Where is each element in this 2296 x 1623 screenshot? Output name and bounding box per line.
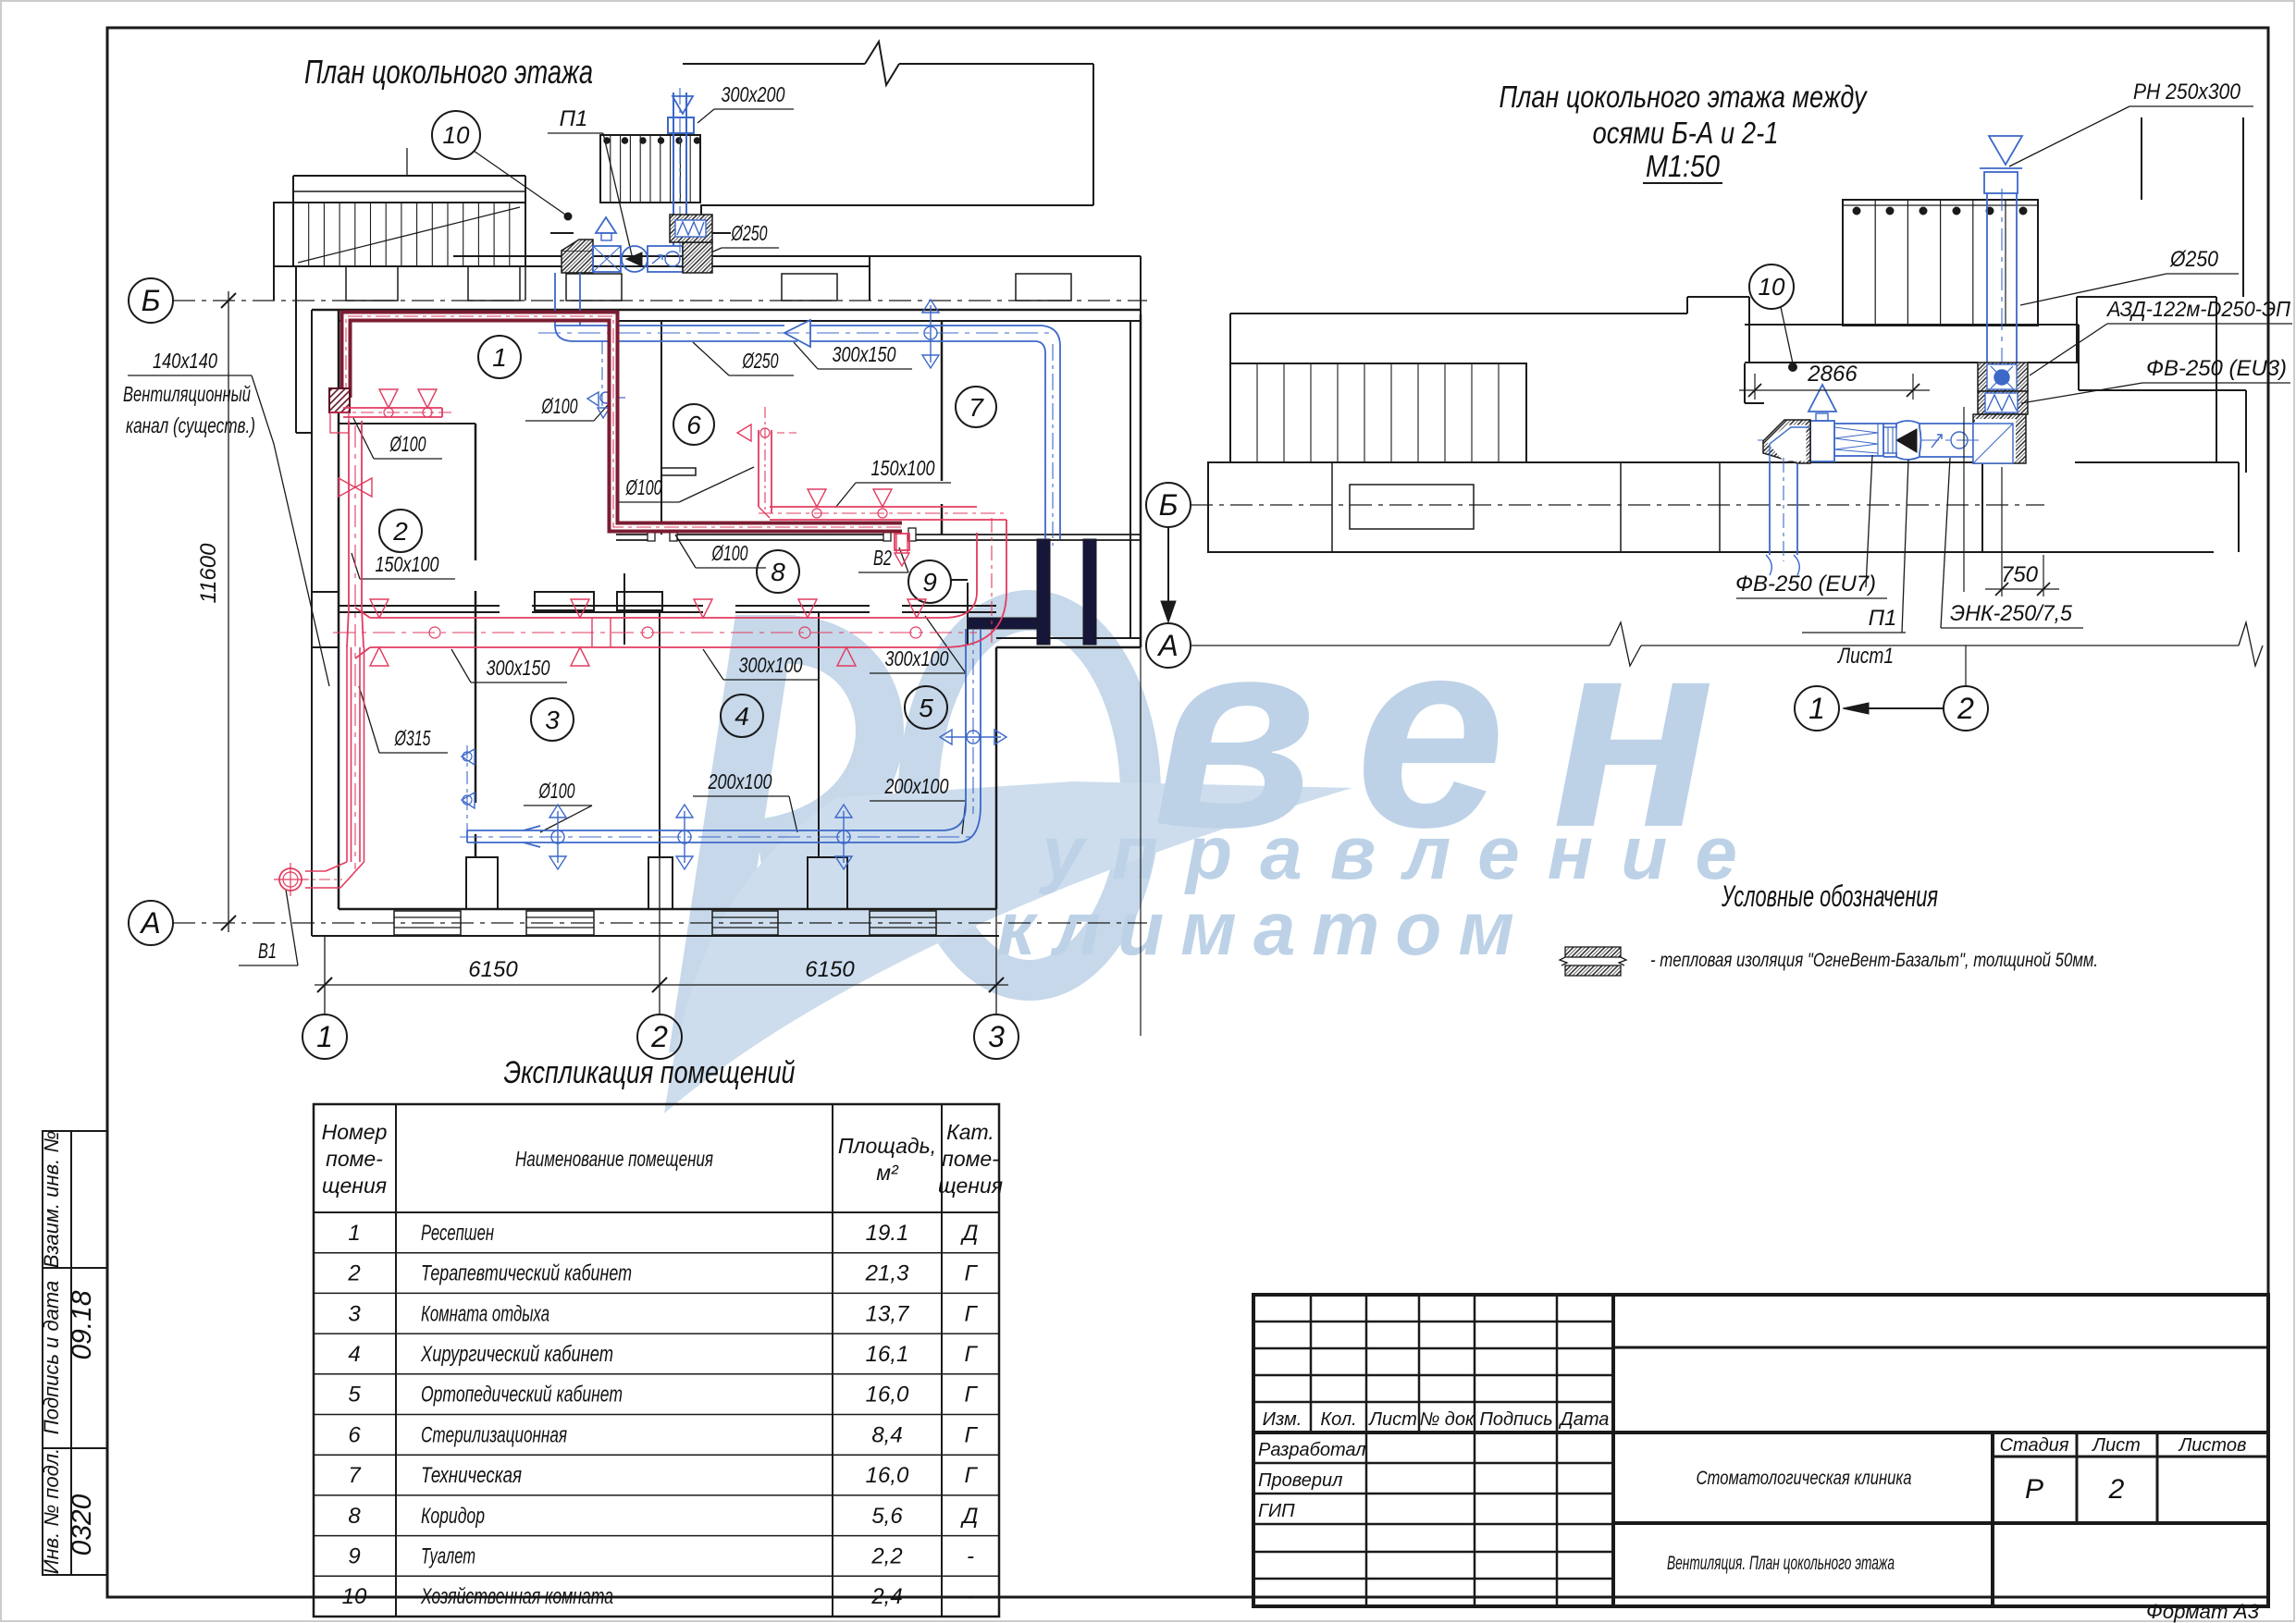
svg-text:Инв. № подл.: Инв. № подл.: [40, 1448, 63, 1575]
svg-text:150x100: 150x100: [871, 456, 935, 480]
svg-text:Г: Г: [964, 1261, 978, 1286]
svg-text:Вентиляция. План цокольного эт: Вентиляция. План цокольного этажа: [1667, 1553, 1895, 1574]
svg-text:300x200: 300x200: [722, 82, 785, 106]
svg-text:-: -: [967, 1584, 974, 1609]
svg-text:8,4: 8,4: [871, 1422, 902, 1447]
svg-text:2,2: 2,2: [870, 1543, 902, 1568]
svg-text:-: -: [967, 1543, 974, 1568]
svg-text:Подпись и дата: Подпись и дата: [40, 1281, 63, 1434]
svg-text:щения: щения: [322, 1174, 387, 1198]
svg-text:Г: Г: [964, 1422, 978, 1447]
svg-text:ФВ-250 (EU7): ФВ-250 (EU7): [1735, 572, 1876, 596]
svg-text:5: 5: [348, 1383, 361, 1408]
svg-text:Б: Б: [1159, 488, 1179, 522]
svg-text:Терапевтический кабинет: Терапевтический кабинет: [421, 1261, 632, 1286]
svg-text:Проверил: Проверил: [1258, 1470, 1342, 1491]
svg-text:Б: Б: [142, 284, 161, 317]
svg-text:ФВ-250 (EU3): ФВ-250 (EU3): [2146, 356, 2287, 381]
svg-text:Ø100: Ø100: [538, 779, 575, 803]
svg-text:2: 2: [1957, 692, 1974, 725]
svg-text:АЗД-122м-D250-ЭП: АЗД-122м-D250-ЭП: [2105, 297, 2290, 321]
svg-text:1: 1: [316, 1020, 333, 1053]
svg-text:16,1: 16,1: [866, 1342, 909, 1367]
svg-text:Кат.: Кат.: [946, 1120, 994, 1144]
svg-text:2: 2: [347, 1261, 360, 1286]
svg-text:Д: Д: [960, 1221, 979, 1246]
svg-text:Вентиляционный: Вентиляционный: [123, 382, 251, 406]
svg-text:2866: 2866: [1807, 362, 1858, 387]
svg-text:6: 6: [348, 1422, 361, 1447]
svg-text:Ø250: Ø250: [742, 349, 779, 373]
svg-text:Комната отдыха: Комната отдыха: [421, 1301, 549, 1326]
svg-text:ЭНК-250/7,5: ЭНК-250/7,5: [1950, 601, 2073, 626]
svg-text:Дата: Дата: [1559, 1409, 1610, 1430]
svg-text:3: 3: [348, 1301, 361, 1326]
svg-text:Хозяйственная комната: Хозяйственная комната: [420, 1584, 613, 1609]
svg-text:0320: 0320: [67, 1494, 97, 1555]
svg-text:Условные обозначения: Условные обозначения: [1721, 879, 1938, 913]
svg-text:Формат А3: Формат А3: [2146, 1600, 2260, 1623]
svg-text:Д: Д: [960, 1504, 979, 1529]
svg-text:М1:50: М1:50: [1646, 149, 1721, 183]
svg-text:Г: Г: [964, 1342, 978, 1367]
svg-text:Подпись: Подпись: [1479, 1409, 1552, 1430]
svg-text:10: 10: [1759, 273, 1785, 301]
svg-text:Ø100: Ø100: [711, 541, 748, 565]
svg-text:Ø100: Ø100: [541, 394, 578, 418]
svg-text:150x100: 150x100: [376, 552, 439, 576]
svg-text:№ док: № док: [1420, 1409, 1475, 1430]
svg-text:5: 5: [919, 694, 933, 722]
svg-text:8: 8: [348, 1504, 361, 1529]
svg-text:11600: 11600: [196, 543, 221, 604]
svg-text:Ø315: Ø315: [394, 726, 431, 750]
svg-text:750: 750: [2001, 562, 2039, 587]
svg-text:поме-: поме-: [942, 1147, 999, 1171]
svg-text:19.1: 19.1: [866, 1221, 909, 1246]
svg-text:Площадь,: Площадь,: [838, 1134, 936, 1158]
svg-text:10: 10: [342, 1584, 367, 1609]
svg-text:2: 2: [2108, 1474, 2125, 1505]
svg-text:Изм.: Изм.: [1263, 1409, 1302, 1430]
svg-text:09.18: 09.18: [67, 1290, 97, 1359]
svg-text:9: 9: [348, 1543, 360, 1568]
svg-text:РН 250x300: РН 250x300: [2133, 80, 2241, 105]
svg-text:2: 2: [392, 517, 408, 546]
svg-text:300x100: 300x100: [885, 646, 949, 670]
svg-text:200x100: 200x100: [708, 769, 772, 793]
svg-text:Техническая: Техническая: [421, 1463, 522, 1488]
svg-text:300x150: 300x150: [833, 342, 896, 366]
svg-text:6150: 6150: [805, 957, 855, 982]
svg-text:Ø100: Ø100: [389, 432, 426, 456]
svg-text:климатом: климатом: [996, 887, 1531, 971]
svg-text:300x100: 300x100: [739, 653, 803, 677]
svg-text:Листов: Листов: [2178, 1435, 2247, 1456]
svg-text:м²: м²: [876, 1161, 899, 1185]
svg-text:Г: Г: [964, 1383, 978, 1408]
svg-text:В1: В1: [258, 939, 277, 963]
svg-text:3: 3: [545, 706, 560, 734]
svg-text:1: 1: [348, 1221, 360, 1246]
svg-text:Г: Г: [964, 1463, 978, 1488]
svg-text:5,6: 5,6: [871, 1504, 903, 1529]
svg-text:6150: 6150: [468, 957, 518, 982]
svg-text:4: 4: [348, 1342, 360, 1367]
svg-text:Р: Р: [2025, 1474, 2043, 1505]
svg-text:1: 1: [492, 343, 507, 372]
svg-text:13,7: 13,7: [866, 1301, 910, 1326]
svg-text:Туалет: Туалет: [421, 1543, 475, 1568]
svg-text:Ресепшен: Ресепшен: [421, 1221, 494, 1246]
svg-text:Ø100: Ø100: [625, 475, 662, 499]
svg-text:Хирургический кабинет: Хирургический кабинет: [420, 1342, 613, 1367]
svg-text:140x140: 140x140: [153, 349, 217, 373]
svg-text:В2: В2: [873, 546, 892, 570]
svg-text:Стадия: Стадия: [2000, 1435, 2069, 1456]
svg-text:ГИП: ГИП: [1258, 1501, 1295, 1521]
svg-text:2,4: 2,4: [870, 1584, 902, 1609]
svg-text:300x150: 300x150: [487, 656, 550, 680]
svg-text:Стерилизационная: Стерилизационная: [421, 1422, 567, 1447]
svg-text:Кол.: Кол.: [1320, 1409, 1356, 1430]
svg-text:Номер: Номер: [322, 1120, 388, 1144]
svg-text:3: 3: [988, 1020, 1005, 1053]
svg-text:осями Б-А и 2-1: осями Б-А и 2-1: [1593, 116, 1779, 150]
svg-text:1: 1: [1808, 692, 1825, 725]
svg-text:Лист1: Лист1: [1836, 644, 1894, 669]
svg-text:Стоматологическая клиника: Стоматологическая клиника: [1697, 1468, 1912, 1489]
svg-text:Наименование помещения: Наименование помещения: [515, 1147, 713, 1171]
svg-text:Экспликация помещений: Экспликация помещений: [504, 1055, 796, 1090]
svg-text:200x100: 200x100: [884, 774, 949, 798]
svg-text:А: А: [139, 906, 160, 940]
svg-text:10: 10: [443, 121, 470, 149]
svg-text:21,3: 21,3: [865, 1261, 909, 1286]
svg-text:Разработал: Разработал: [1258, 1440, 1366, 1460]
svg-text:управление: управление: [1038, 811, 1765, 895]
svg-text:Лист: Лист: [1367, 1409, 1417, 1430]
svg-text:7: 7: [348, 1463, 362, 1488]
svg-text:План цокольного этажа между: План цокольного этажа между: [1500, 80, 1869, 114]
svg-text:Ø250: Ø250: [731, 221, 768, 245]
svg-text:2: 2: [650, 1020, 668, 1053]
svg-text:Г: Г: [964, 1301, 978, 1326]
svg-text:9: 9: [922, 568, 937, 596]
svg-text:Лист: Лист: [2091, 1435, 2141, 1456]
svg-text:16,0: 16,0: [866, 1383, 909, 1408]
svg-text:Коридор: Коридор: [421, 1504, 485, 1529]
svg-text:Ø250: Ø250: [2169, 247, 2218, 272]
svg-text:8: 8: [771, 558, 785, 586]
svg-text:П1: П1: [1869, 606, 1897, 631]
svg-text:Взаим. инв. №: Взаим. инв. №: [40, 1131, 63, 1268]
svg-text:канал (существ.): канал (существ.): [126, 413, 255, 437]
svg-text:поме-: поме-: [326, 1147, 383, 1171]
svg-text:План цокольного этажа: План цокольного этажа: [304, 53, 593, 91]
svg-text:6: 6: [686, 411, 701, 439]
svg-text:П1: П1: [560, 106, 588, 131]
svg-text:16,0: 16,0: [866, 1463, 909, 1488]
svg-text:щения: щения: [938, 1174, 1003, 1198]
svg-text:7: 7: [969, 393, 984, 422]
svg-text:А: А: [1156, 629, 1178, 662]
svg-text:- тепловая изоляция "ОгнеВент: - тепловая изоляция "ОгнеВент-Базальт", …: [1650, 950, 2098, 971]
svg-text:4: 4: [734, 702, 749, 731]
svg-text:Ортопедический кабинет: Ортопедический кабинет: [421, 1383, 623, 1408]
